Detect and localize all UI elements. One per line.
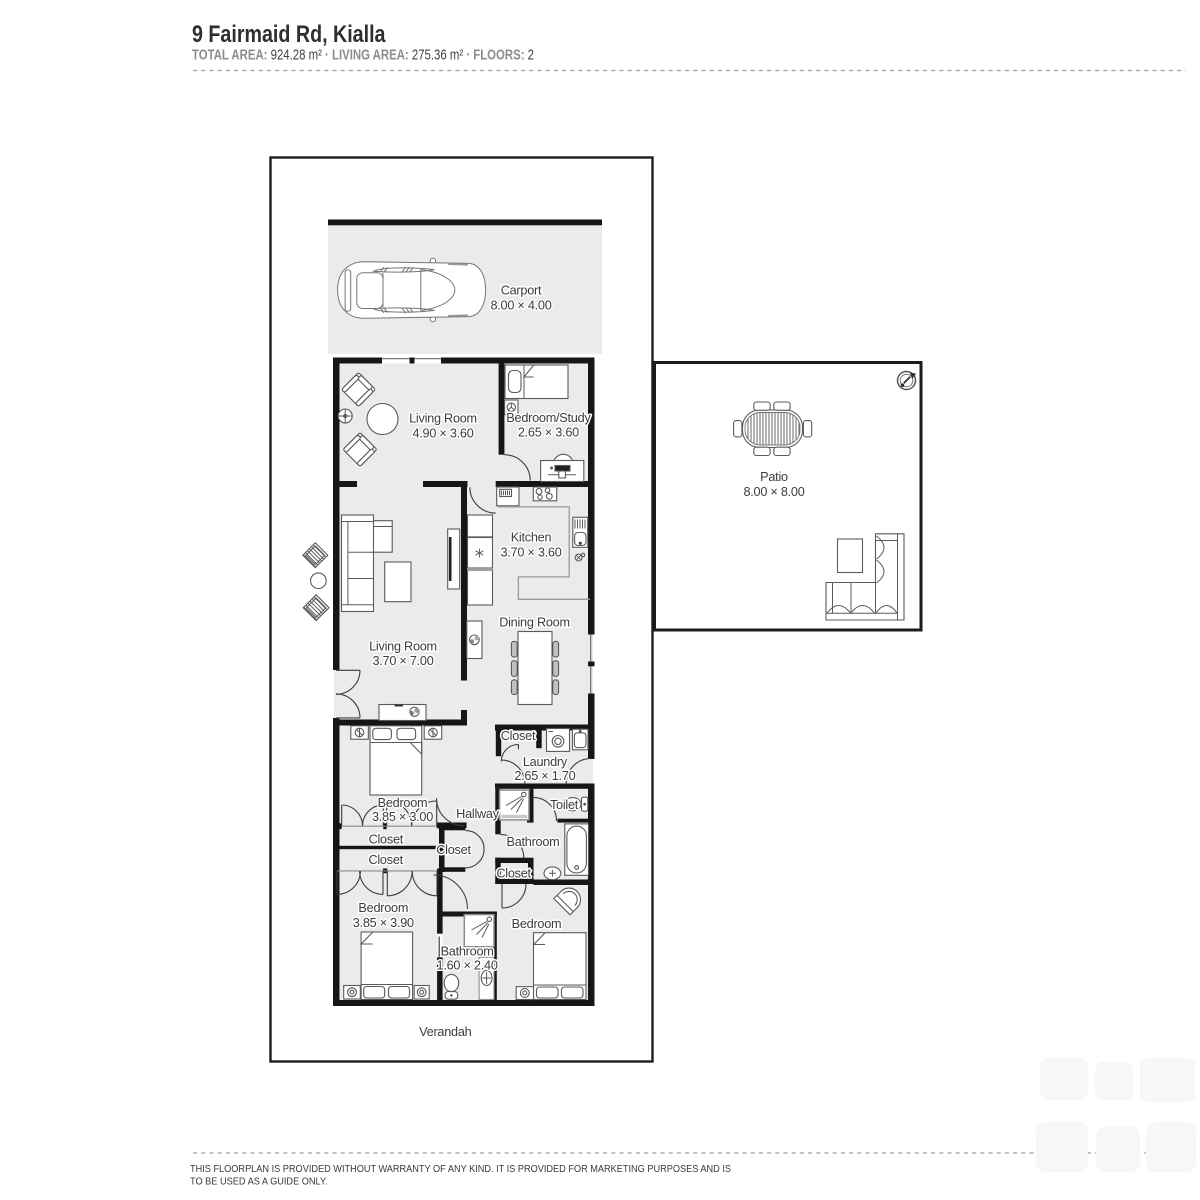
- svg-text:3.85 × 3.00: 3.85 × 3.00: [372, 810, 433, 824]
- svg-text:Laundry: Laundry: [523, 755, 568, 769]
- svg-text:Closet: Closet: [368, 853, 403, 867]
- svg-text:Toilet: Toilet: [550, 798, 579, 812]
- svg-text:Dining Room: Dining Room: [499, 616, 570, 630]
- svg-text:Closet: Closet: [501, 729, 536, 743]
- svg-text:Carport: Carport: [501, 284, 542, 298]
- svg-text:Living Room: Living Room: [409, 412, 477, 426]
- svg-text:Bedroom/Study: Bedroom/Study: [506, 411, 591, 425]
- svg-text:8.00 × 4.00: 8.00 × 4.00: [490, 298, 551, 312]
- svg-text:THIS FLOORPLAN IS PROVIDED WIT: THIS FLOORPLAN IS PROVIDED WITHOUT WARRA…: [190, 1164, 731, 1175]
- svg-text:Hallway: Hallway: [456, 807, 500, 821]
- svg-text:TO BE USED AS A GUIDE ONLY.: TO BE USED AS A GUIDE ONLY.: [190, 1177, 328, 1188]
- svg-text:9 Fairmaid Rd, Kialla: 9 Fairmaid Rd, Kialla: [192, 21, 386, 48]
- svg-text:TOTAL AREA: 924.28 m² · LIVING: TOTAL AREA: 924.28 m² · LIVING AREA: 275…: [192, 48, 534, 64]
- svg-text:3.70 × 7.00: 3.70 × 7.00: [372, 654, 433, 668]
- svg-text:8.00 × 8.00: 8.00 × 8.00: [743, 485, 804, 499]
- svg-text:Living Room: Living Room: [369, 640, 437, 654]
- svg-text:Bedroom: Bedroom: [358, 901, 408, 915]
- svg-text:Bedroom: Bedroom: [512, 917, 562, 931]
- svg-text:Closet: Closet: [369, 833, 404, 847]
- svg-text:2.65 × 3.60: 2.65 × 3.60: [518, 426, 579, 440]
- svg-text:4.90 × 3.60: 4.90 × 3.60: [412, 426, 473, 440]
- svg-text:Bathroom: Bathroom: [441, 945, 494, 959]
- svg-text:Closet: Closet: [436, 843, 471, 857]
- svg-text:2.65 × 1.70: 2.65 × 1.70: [514, 769, 575, 783]
- svg-text:Bedroom: Bedroom: [378, 796, 428, 810]
- svg-text:Bathroom: Bathroom: [506, 835, 559, 849]
- svg-text:Kitchen: Kitchen: [511, 531, 552, 545]
- svg-text:1.60 × 2.40: 1.60 × 2.40: [437, 959, 498, 973]
- svg-text:3.85 × 3.90: 3.85 × 3.90: [353, 916, 414, 930]
- svg-text:Patio: Patio: [760, 470, 788, 484]
- svg-text:3.70 × 3.60: 3.70 × 3.60: [500, 545, 561, 559]
- svg-text:Closet: Closet: [496, 867, 531, 881]
- svg-text:Verandah: Verandah: [419, 1025, 472, 1039]
